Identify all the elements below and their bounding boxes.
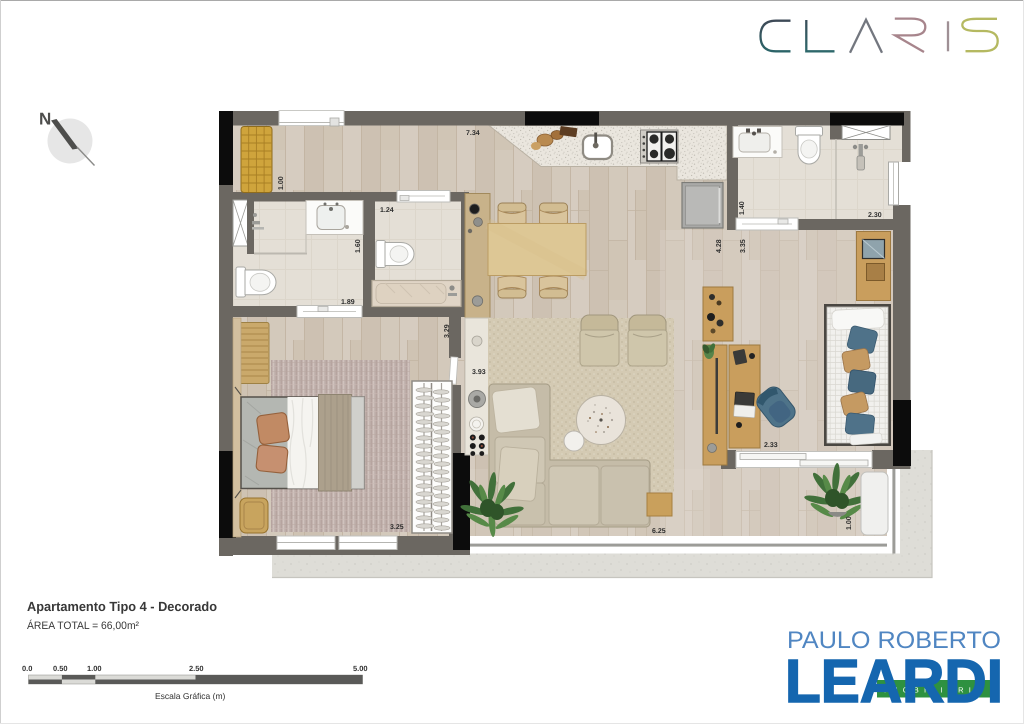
svg-text:2.30: 2.30	[868, 212, 882, 219]
svg-text:1.00: 1.00	[846, 516, 853, 530]
svg-text:LEARDI: LEARDI	[785, 647, 1003, 715]
svg-text:3.25: 3.25	[390, 524, 404, 531]
svg-text:N: N	[39, 110, 51, 129]
svg-text:1.89: 1.89	[341, 299, 355, 306]
svg-text:3.35: 3.35	[740, 239, 747, 253]
svg-text:5.00: 5.00	[353, 664, 368, 673]
svg-text:6.25: 6.25	[652, 528, 666, 535]
svg-text:Escala Gráfica (m): Escala Gráfica (m)	[155, 691, 226, 701]
svg-text:7.34: 7.34	[466, 130, 480, 137]
svg-text:3.29: 3.29	[444, 324, 451, 338]
svg-text:1.60: 1.60	[355, 239, 362, 253]
svg-text:2.33: 2.33	[764, 442, 778, 449]
svg-text:Apartamento Tipo 4 - Decorado: Apartamento Tipo 4 - Decorado	[27, 599, 217, 614]
svg-text:4.28: 4.28	[716, 239, 723, 253]
svg-text:2.50: 2.50	[189, 664, 204, 673]
svg-text:1.00: 1.00	[278, 176, 285, 190]
svg-text:ÁREA TOTAL = 66,00m²: ÁREA TOTAL = 66,00m²	[27, 619, 139, 632]
svg-text:0.0: 0.0	[22, 664, 32, 673]
svg-text:3.93: 3.93	[472, 369, 486, 376]
svg-text:1.24: 1.24	[380, 207, 394, 214]
svg-text:1.40: 1.40	[739, 201, 746, 215]
svg-text:0.50: 0.50	[53, 664, 68, 673]
svg-text:1.00: 1.00	[87, 664, 102, 673]
